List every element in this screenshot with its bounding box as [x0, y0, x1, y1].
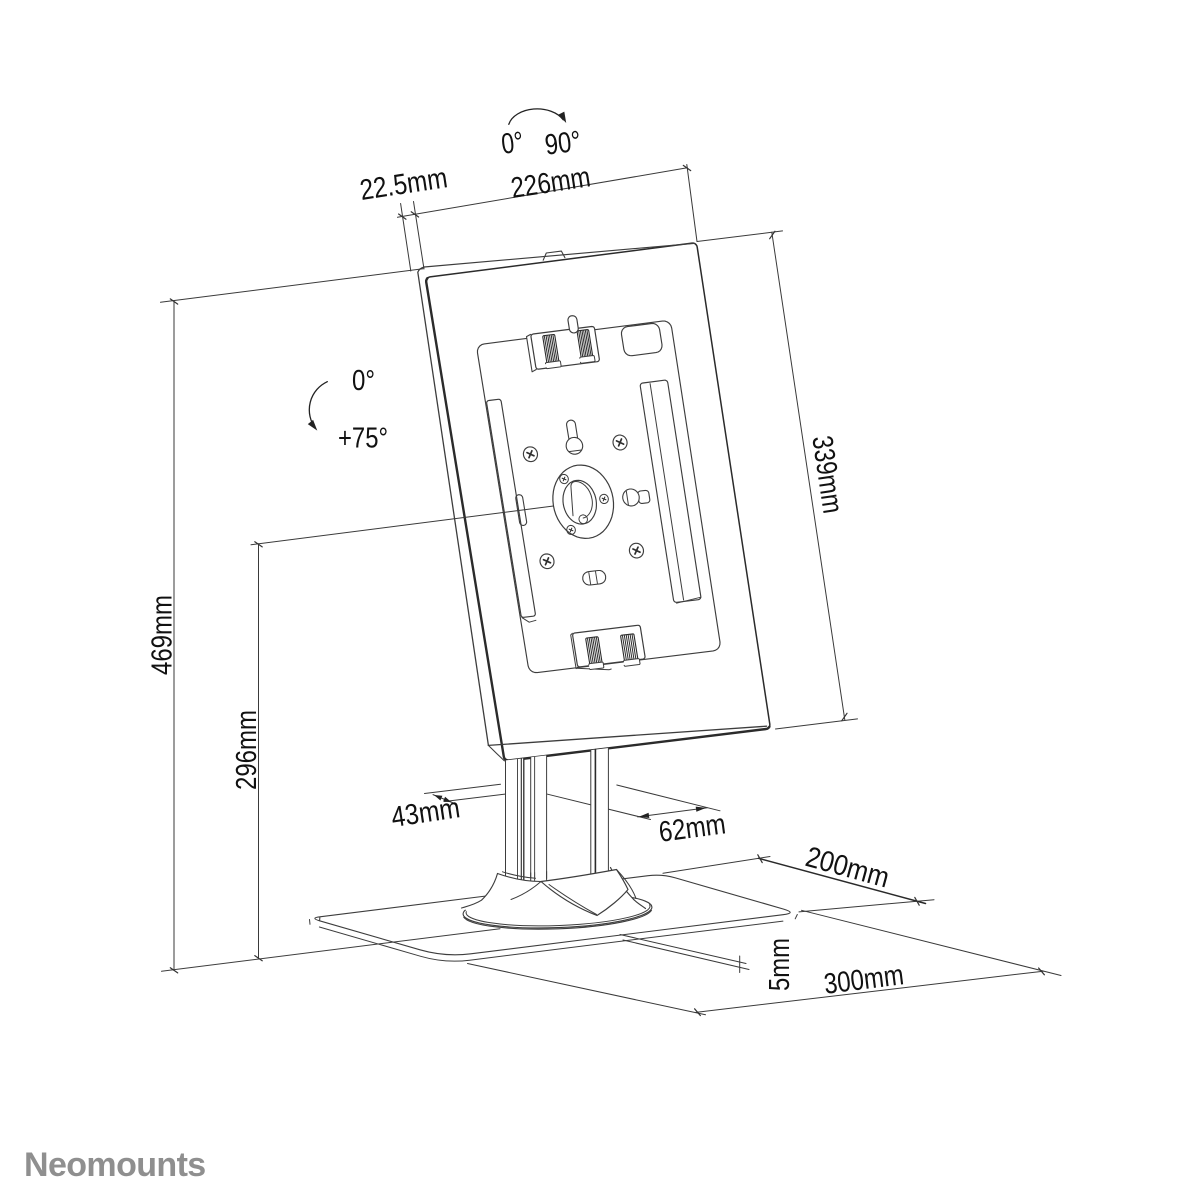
svg-text:0°: 0°	[500, 126, 526, 160]
svg-text:0°: 0°	[352, 365, 375, 397]
svg-text:469mm: 469mm	[147, 595, 179, 675]
svg-text:90°: 90°	[543, 125, 583, 161]
svg-text:296mm: 296mm	[231, 710, 263, 790]
svg-text:5mm: 5mm	[764, 938, 796, 991]
svg-text:Neomounts: Neomounts	[24, 1146, 206, 1184]
svg-text:+75°: +75°	[338, 423, 388, 455]
